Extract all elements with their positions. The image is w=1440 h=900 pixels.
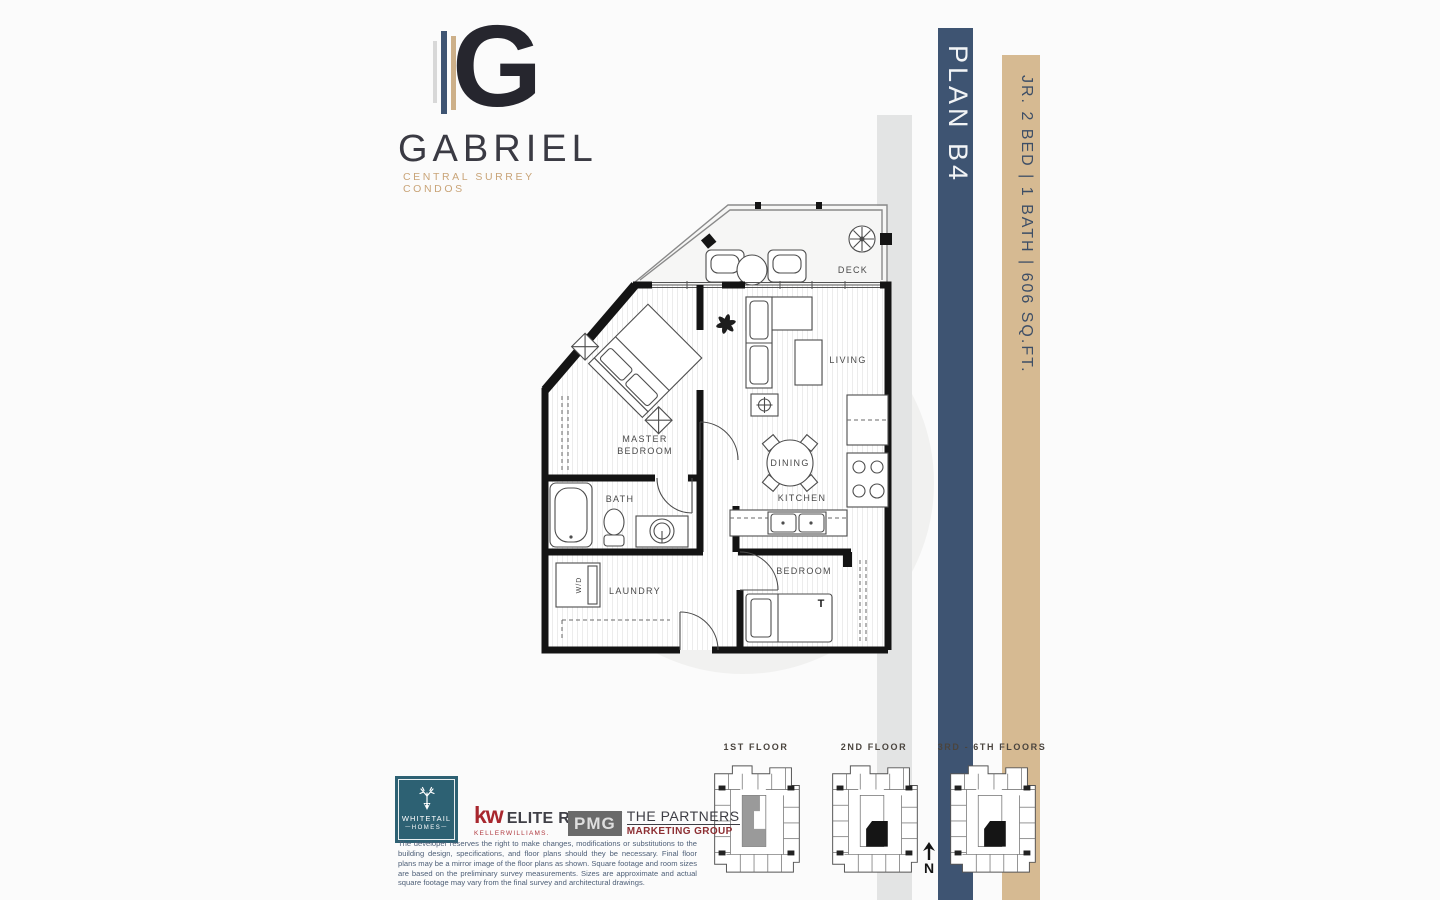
whitetail-homes: HOMES [405, 824, 448, 831]
label-kitchen: KITCHEN [778, 493, 827, 503]
keyplan-upper-label: 3RD - 6TH FLOORS [936, 742, 1048, 752]
deck-table [737, 255, 767, 285]
side-table [751, 394, 778, 416]
label-bath: BATH [606, 494, 635, 504]
north-arrow-label: N [918, 861, 940, 875]
label-wd: W/D [576, 577, 583, 594]
label-dining: DINING [770, 458, 809, 468]
logo-stripe-navy [441, 31, 447, 114]
label-master-1: MASTER [622, 434, 667, 444]
brand-tagline: CENTRAL SURREY CONDOS [403, 171, 573, 195]
label-bedroom: BEDROOM [776, 566, 832, 576]
keyplan-second-drawing [822, 756, 926, 882]
closet-pier [843, 552, 852, 567]
ceiling-fan-icon [849, 226, 875, 252]
whitetail-homes-logo: WHITETAIL HOMES [395, 776, 458, 843]
floorplan-drawing: DECK LIVING MASTER BEDROOM DINING KITCHE… [540, 200, 900, 660]
whitetail-name: WHITETAIL [402, 814, 451, 823]
coffee-table [795, 340, 822, 385]
logo-stripe-gray [433, 41, 437, 103]
brochure-page: PLAN B4 JR. 2 BED | 1 BATH | 606 SQ.FT. … [0, 0, 1440, 900]
plan-name-label: PLAN B4 [938, 45, 973, 184]
pmg-marketing-group: MARKETING GROUP [627, 826, 740, 837]
windows [652, 281, 880, 289]
north-arrow-icon [921, 842, 937, 860]
label-bed-size: T [818, 598, 825, 610]
pmg-mark: PMG [568, 811, 622, 836]
brand-name: GABRIEL [398, 128, 564, 171]
keyplan-first-label: 1ST FLOOR [700, 742, 812, 752]
north-arrow: N [918, 842, 940, 875]
pmg-partners: THE PARTNERS [627, 809, 740, 825]
brand-logo-letter: G [452, 8, 542, 124]
label-living: LIVING [829, 355, 866, 365]
keyplan-second-floor: 2ND FLOOR [818, 742, 930, 887]
plan-specs-label: JR. 2 BED | 1 BATH | 606 SQ.FT. [1007, 75, 1035, 374]
deer-icon [412, 783, 442, 813]
keyplan-second-label: 2ND FLOOR [818, 742, 930, 752]
keyplan-upper-floors: 3RD - 6TH FLOORS [936, 742, 1048, 887]
keyplan-upper-drawing [940, 756, 1044, 882]
disclaimer-text: The developer reserves the right to make… [398, 839, 697, 888]
label-laundry: LAUNDRY [609, 586, 661, 596]
pmg-logo: PMG THE PARTNERS MARKETING GROUP [568, 809, 740, 837]
kw-mark: kw [474, 806, 503, 824]
keyplan-second-unit-highlight [866, 821, 888, 847]
label-master-2: BEDROOM [617, 446, 673, 456]
label-deck: DECK [838, 265, 868, 275]
keyplan-upper-unit-highlight [984, 821, 1006, 847]
